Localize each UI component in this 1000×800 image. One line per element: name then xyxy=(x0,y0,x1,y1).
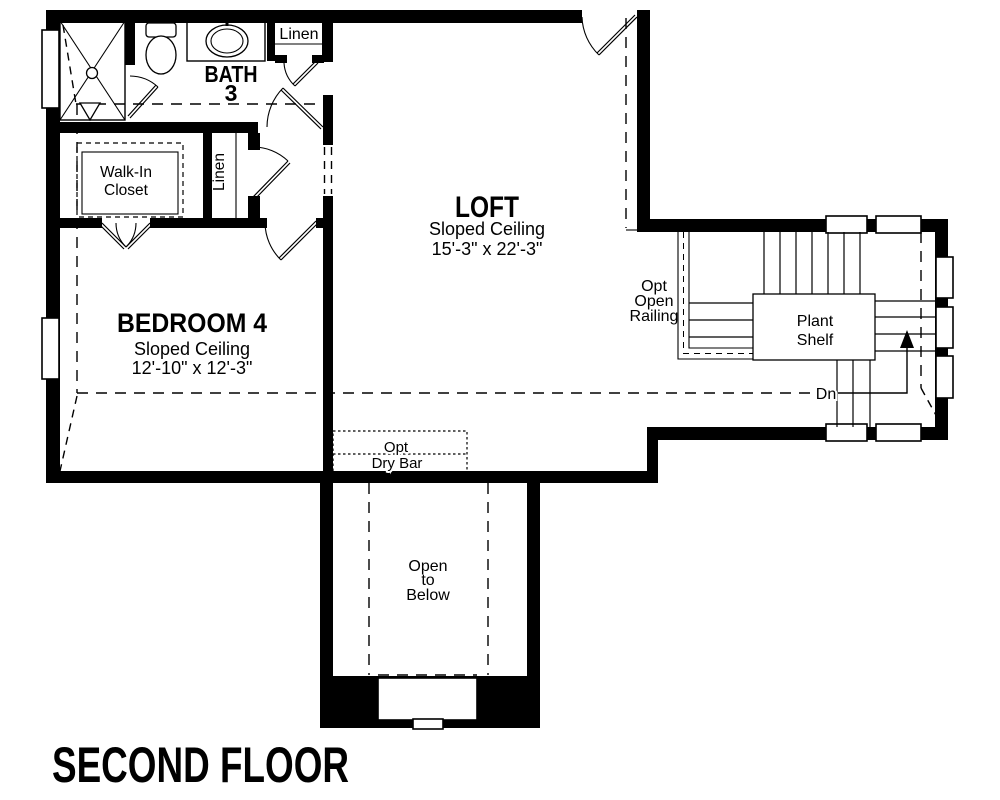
door-bedroom xyxy=(265,221,318,260)
bedroom-dims-label: 12'-10" x 12'-3" xyxy=(132,358,253,378)
walk-in-closet-label-1: Walk-In xyxy=(100,164,152,181)
open-below-label-3: Below xyxy=(406,587,450,604)
stair-treads-top xyxy=(764,232,860,294)
floor-plan-drawing: BATH 3 Linen Walk-In Closet Linen LOFT S… xyxy=(0,0,1000,800)
loft-dims-label: 15'-3" x 22'-3" xyxy=(432,239,543,259)
door-bath xyxy=(267,88,323,129)
window-stairtop-2 xyxy=(876,216,921,233)
window-stairbottom-2 xyxy=(876,424,921,441)
railing-label-3: Railing xyxy=(630,308,679,325)
linen-top-label: Linen xyxy=(279,26,318,43)
windows xyxy=(42,30,953,729)
loft-ceiling-label: Sloped Ceiling xyxy=(429,219,545,239)
wall-east-lower xyxy=(323,196,333,471)
ceiling-dash-stair-corner xyxy=(921,388,937,417)
walk-in-closet-label-2: Closet xyxy=(104,182,149,199)
stair-treads-left xyxy=(689,303,753,337)
window-bay-tab xyxy=(413,719,443,729)
linen-hall-label: Linen xyxy=(211,153,228,191)
wall-northeast xyxy=(322,21,333,62)
shower-icon xyxy=(60,21,125,120)
wall-bedroom-door-jamb xyxy=(316,218,323,228)
toilet-icon xyxy=(146,23,176,74)
floor-plan-page: BATH 3 Linen Walk-In Closet Linen LOFT S… xyxy=(0,0,1000,800)
door-hall xyxy=(253,147,290,199)
wall-east-upper xyxy=(323,95,333,145)
ceiling-dash-bedroom-diagonal xyxy=(60,396,77,471)
plant-shelf-label-1: Plant xyxy=(797,313,834,330)
door-loft-entry xyxy=(582,15,637,55)
bedroom-ceiling-label: Sloped Ceiling xyxy=(134,339,250,359)
plant-shelf-label-2: Shelf xyxy=(797,332,834,349)
door-shower xyxy=(128,76,158,118)
wall-linen-stub-left xyxy=(275,55,287,63)
wall-lower-horizontal xyxy=(46,471,658,483)
window-bath-left xyxy=(42,30,59,108)
railing-outline xyxy=(678,232,753,359)
faucet-icon xyxy=(226,12,229,26)
window-bay-notch xyxy=(378,678,477,720)
wall-loft-east xyxy=(637,10,650,232)
dry-bar-label-2: Dry Bar xyxy=(372,455,423,472)
wall-vanity-east xyxy=(267,21,275,61)
wall-closet-south-left xyxy=(46,218,102,228)
wall-open-below-east xyxy=(527,483,540,676)
bedroom-label: BEDROOM 4 xyxy=(117,308,267,338)
window-right-3 xyxy=(936,356,953,398)
ceiling-dash-shower-diagonal xyxy=(63,25,76,104)
window-bedroom-left xyxy=(42,318,59,379)
bath-label-number: 3 xyxy=(225,80,238,106)
dry-bar-label-1: Opt xyxy=(384,439,409,456)
wall-hall-stub-bottom xyxy=(248,196,260,218)
wall-open-below-west xyxy=(320,483,333,676)
window-right-1 xyxy=(936,257,953,298)
window-right-2 xyxy=(936,307,953,348)
door-linen-top xyxy=(284,61,318,86)
wall-shower-stub xyxy=(125,21,135,65)
window-stairbottom-1 xyxy=(826,424,867,441)
page-title: SECOND FLOOR xyxy=(52,737,349,793)
wall-closet-south-right xyxy=(150,218,267,228)
window-stairtop-1 xyxy=(826,216,867,233)
room-labels: BATH 3 Linen Walk-In Closet Linen LOFT S… xyxy=(100,26,836,604)
stair-down-label: Dn xyxy=(816,386,836,403)
wall-bath-south xyxy=(46,122,258,133)
